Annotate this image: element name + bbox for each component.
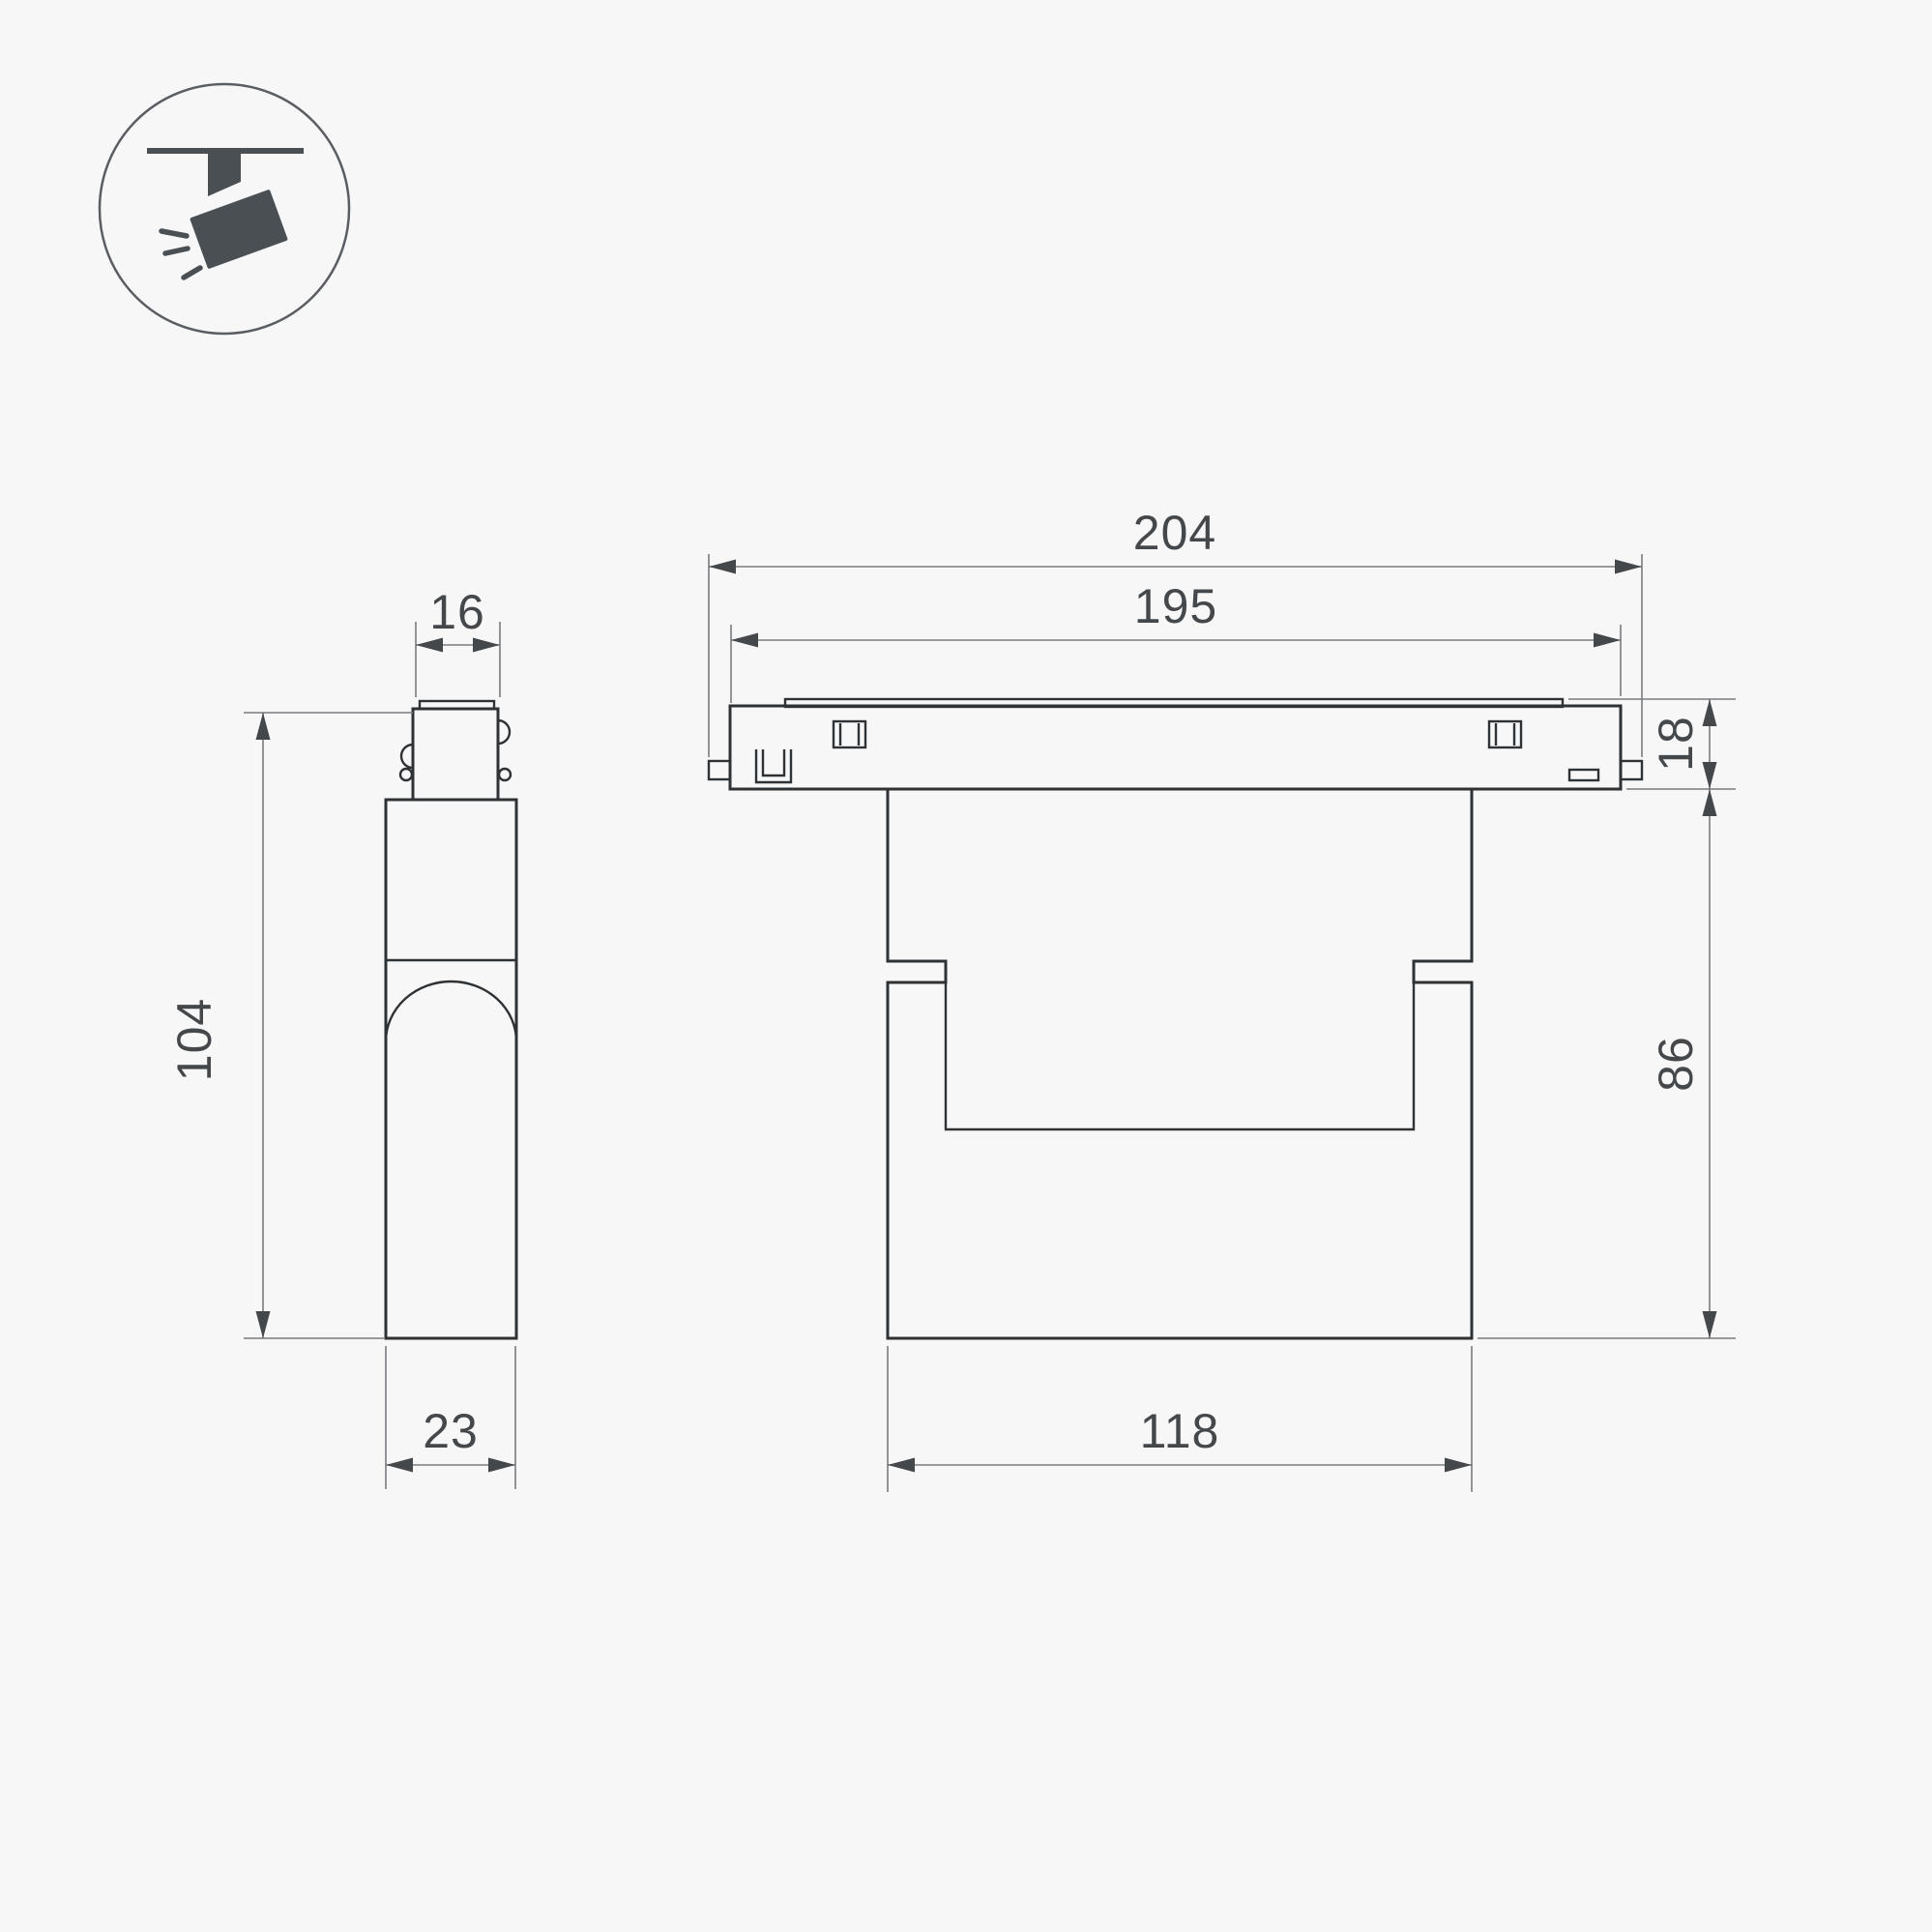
track-spotlight-icon bbox=[100, 84, 349, 334]
arrow-up-icon bbox=[256, 713, 271, 740]
dim-label-16: 16 bbox=[429, 585, 485, 639]
side-left-pin bbox=[400, 769, 412, 780]
dimension-side-height: 104 bbox=[167, 713, 413, 1338]
dimension-body-length: 118 bbox=[888, 1346, 1472, 1492]
dimension-side-depth: 23 bbox=[386, 1346, 515, 1489]
front-left-tab bbox=[709, 761, 730, 779]
arrow-right-icon bbox=[1445, 1458, 1472, 1473]
icon-ceiling-bar bbox=[147, 148, 304, 154]
icon-light-rays bbox=[161, 231, 200, 278]
front-recessed-panel bbox=[946, 982, 1414, 1129]
arrow-down-icon bbox=[1703, 1311, 1717, 1338]
side-right-clip bbox=[498, 720, 510, 744]
arrow-left-icon bbox=[386, 1458, 413, 1473]
front-lamp-body bbox=[888, 789, 1472, 1338]
dimension-side-top-width: 16 bbox=[416, 585, 500, 697]
side-track-adapter bbox=[413, 709, 498, 800]
dim-label-118: 118 bbox=[1140, 1404, 1220, 1458]
front-vent-slot bbox=[1569, 770, 1598, 780]
arrow-left-icon bbox=[709, 560, 736, 574]
arrow-up-icon bbox=[1703, 789, 1717, 816]
side-lamp-body bbox=[386, 800, 516, 1338]
arrow-right-icon bbox=[473, 638, 500, 653]
drawing-canvas: 16 104 23 204 195 bbox=[0, 0, 1932, 1932]
dim-label-18: 18 bbox=[1649, 716, 1703, 772]
dim-label-204: 204 bbox=[1133, 506, 1216, 560]
arrow-up-icon bbox=[1703, 699, 1717, 726]
arrow-down-icon bbox=[256, 1311, 271, 1338]
dim-label-104: 104 bbox=[167, 998, 221, 1081]
dimension-track-length: 195 bbox=[731, 579, 1621, 703]
arrow-right-icon bbox=[1615, 560, 1642, 574]
dimension-track-height: 18 bbox=[1568, 699, 1736, 789]
arrow-right-icon bbox=[488, 1458, 515, 1473]
dim-label-23: 23 bbox=[423, 1404, 479, 1458]
dimension-body-height: 86 bbox=[1478, 789, 1736, 1338]
arrow-left-icon bbox=[416, 638, 443, 653]
side-left-clip bbox=[401, 745, 413, 768]
front-u-bracket-inner bbox=[763, 749, 784, 776]
icon-lamp-body bbox=[190, 190, 288, 270]
arrow-left-icon bbox=[731, 633, 758, 648]
arrow-right-icon bbox=[1594, 633, 1621, 648]
front-right-socket bbox=[1489, 721, 1521, 747]
side-right-pin bbox=[499, 769, 511, 780]
front-u-bracket-outer bbox=[756, 749, 791, 782]
technical-drawing: 16 104 23 204 195 bbox=[0, 0, 1932, 1932]
arrow-down-icon bbox=[1703, 762, 1717, 789]
icon-track-stem bbox=[208, 154, 241, 196]
front-view bbox=[709, 699, 1642, 1338]
dim-label-195: 195 bbox=[1134, 579, 1217, 633]
front-left-socket bbox=[834, 721, 865, 747]
dim-label-86: 86 bbox=[1649, 1036, 1703, 1092]
side-lens-arch bbox=[386, 981, 516, 1041]
front-right-tab bbox=[1621, 761, 1642, 779]
side-view bbox=[386, 701, 516, 1338]
arrow-left-icon bbox=[888, 1458, 915, 1473]
